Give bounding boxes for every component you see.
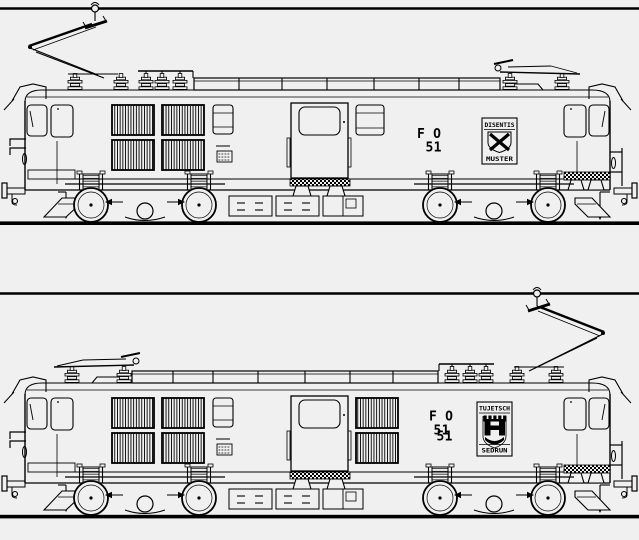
number-text: 51 (426, 141, 442, 156)
locomotive-body (2, 84, 637, 222)
locomotive-bottom: F O 51 51 TUJETSCH (2, 299, 637, 515)
crest-top-text: TUJETSCH (479, 407, 511, 413)
catenary-hanger-top (91, 3, 99, 22)
pantograph-folded (494, 60, 580, 89)
drawing-canvas: F O 51 DISENTIS MUSTER (0, 0, 639, 540)
pantograph-raised (28, 16, 128, 89)
operator-text: F O (429, 410, 453, 425)
pantograph-raised (510, 299, 605, 382)
locomotive-top: F O 51 DISENTIS MUSTER (2, 16, 637, 222)
rail-bottom (0, 515, 639, 519)
crest-bottom-text: MUSTER (486, 156, 513, 163)
pantograph-shoe (494, 60, 513, 64)
ventilation-grille (356, 433, 398, 463)
number-overprint-text: 51 (437, 430, 453, 445)
locomotive-diagram: F O 51 DISENTIS MUSTER (0, 0, 639, 540)
heraldic-crest: TUJETSCH SEDRUN (477, 402, 512, 456)
ventilation-grille (356, 398, 398, 428)
pantograph-shoe (121, 353, 140, 357)
roof-equipment-box (132, 371, 438, 383)
pantograph-folded (54, 353, 140, 382)
saltire-shield-emblem (488, 132, 511, 153)
roof-bus-insulators (138, 71, 193, 89)
roof-equipment-box (194, 78, 500, 90)
crest-bottom-text: SEDRUN (482, 449, 509, 455)
locomotive-body (2, 377, 637, 515)
shutter-window (356, 105, 384, 135)
scene: F O 51 DISENTIS MUSTER (0, 3, 639, 519)
heraldic-crest: DISENTIS MUSTER (482, 118, 517, 164)
roof-bus-insulators (439, 364, 494, 382)
crest-top-text: DISENTIS (485, 122, 515, 129)
